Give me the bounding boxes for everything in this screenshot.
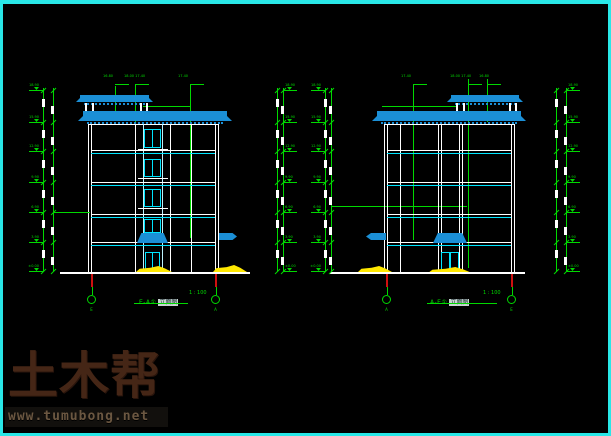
window-mullion	[152, 130, 154, 147]
dimension-text-block	[555, 190, 558, 198]
dimension-text-block	[564, 167, 567, 175]
floor-slab-line	[91, 214, 215, 215]
dimension-text-block	[324, 99, 327, 107]
level-elevation-label: 12.90	[301, 144, 321, 149]
wall-top-line	[88, 124, 218, 125]
dimension-text-block	[42, 130, 45, 138]
dimension-text-block	[324, 190, 327, 198]
leader-line	[190, 84, 204, 85]
level-elevation-label: 6.90	[301, 205, 321, 210]
level-elevation-label: 15.90	[568, 115, 578, 120]
wall-edge-line	[218, 124, 219, 272]
floor-slab-line	[387, 245, 511, 246]
level-marker-line	[283, 122, 297, 123]
window-mullion	[152, 190, 154, 206]
level-elevation-label: 3.90	[301, 235, 321, 240]
floor-slab-line	[91, 153, 215, 154]
floor-slab-line	[387, 217, 511, 218]
grid-stub-green	[512, 287, 513, 295]
awning-canopy	[137, 233, 168, 243]
wall-mullion-line	[438, 124, 439, 272]
level-marker-line	[29, 212, 43, 213]
main-roof-eave-tip	[226, 115, 232, 121]
watermark-url: www.tumubong.net	[5, 407, 168, 427]
dimension-text-block	[281, 257, 284, 265]
grid-stub-red	[386, 274, 388, 287]
leader-line	[468, 84, 482, 85]
level-marker-line	[283, 151, 297, 152]
dimension-text-block	[564, 106, 567, 114]
level-elevation-label: ±0.00	[568, 264, 579, 269]
level-elevation-label: 9.90	[301, 175, 321, 180]
leader-line	[115, 84, 129, 85]
dimension-tick	[51, 269, 57, 275]
level-marker-line	[311, 90, 325, 91]
wall-mullion-line	[170, 124, 171, 272]
level-elevation-label: 18.90	[285, 83, 295, 88]
level-marker-line	[566, 90, 580, 91]
left-title-underline	[134, 303, 188, 304]
axis-bubble: A	[382, 295, 391, 304]
dimension-text-block	[51, 257, 54, 265]
dim-extension-line	[53, 212, 90, 213]
small-roof-eave-tip	[148, 97, 153, 102]
level-marker-line	[29, 122, 43, 123]
floor-slab-line	[91, 150, 215, 151]
dimension-tick	[275, 269, 281, 275]
level-marker-line	[283, 182, 297, 183]
wall-edge-line	[215, 124, 216, 272]
right-view-title: A-E①立面图	[430, 289, 469, 308]
dimension-text-block	[51, 167, 54, 175]
grid-line-horizontal	[143, 106, 190, 107]
dimension-text-block	[555, 130, 558, 138]
grid-line-horizontal	[382, 106, 458, 107]
roof-elevation-label: 16.80	[103, 74, 113, 79]
dimension-text-block	[564, 137, 567, 145]
axis-bubble: E	[87, 295, 96, 304]
dimension-text-block	[51, 137, 54, 145]
dimension-text-block	[329, 106, 332, 114]
left-view-title: E-A①立面图	[139, 289, 178, 308]
level-marker-line	[566, 271, 580, 272]
dimension-text-block	[51, 197, 54, 205]
wall-mullion-line	[400, 124, 401, 272]
dimension-text-block	[324, 160, 327, 168]
wall-edge-line	[387, 124, 388, 272]
dimension-text-block	[51, 106, 54, 114]
dimension-text-block	[42, 160, 45, 168]
level-marker-line	[311, 212, 325, 213]
small-roof-eave-tip	[518, 97, 523, 102]
level-marker-line	[566, 242, 580, 243]
floor-slab-line	[91, 185, 215, 186]
grid-stub-red	[511, 274, 513, 287]
wall-edge-line	[511, 124, 512, 272]
floor-slab-line	[91, 182, 215, 183]
level-elevation-label: ±0.00	[19, 264, 39, 269]
dimension-text-block	[276, 160, 279, 168]
ground-line	[330, 272, 525, 274]
dimension-text-block	[42, 99, 45, 107]
dimension-text-block	[324, 220, 327, 228]
main-roof-eave-tip	[372, 115, 378, 121]
floor-slab-line	[91, 245, 215, 246]
floor-slab-line	[387, 153, 511, 154]
level-elevation-label: 18.90	[19, 83, 39, 88]
dimension-text-block	[281, 197, 284, 205]
level-marker-line	[311, 182, 325, 183]
floor-slab-line	[387, 185, 511, 186]
dimension-text-block	[555, 99, 558, 107]
roof-elevation-label: 17.40	[401, 74, 411, 79]
floor-slab-line	[387, 214, 511, 215]
window-sill-line	[138, 149, 168, 150]
level-elevation-label: 9.90	[568, 175, 576, 180]
dimension-tick	[554, 269, 560, 275]
dimension-text-block	[276, 220, 279, 228]
wall-top-line	[384, 124, 514, 125]
level-elevation-label: 12.90	[285, 144, 295, 149]
small-roof	[451, 95, 519, 102]
dimension-text-block	[276, 250, 279, 258]
window-sill-line	[138, 208, 168, 209]
level-marker-line	[283, 212, 297, 213]
dimension-text-block	[281, 106, 284, 114]
roof-elevation-label: 18.00 17.40	[124, 74, 145, 79]
level-marker-line	[566, 212, 580, 213]
dimension-text-block	[42, 220, 45, 228]
wall-mullion-line	[441, 124, 442, 272]
level-elevation-label: 6.90	[568, 205, 576, 210]
roof-elevation-label: 17.40	[178, 74, 188, 79]
wall-mullion-line	[459, 124, 460, 272]
wall-edge-line	[384, 124, 385, 272]
wall-edge-line	[514, 124, 515, 272]
awning-canopy	[219, 233, 237, 240]
roof-elevation-label: 18.00 17.40	[450, 74, 471, 79]
level-elevation-label: 3.90	[285, 235, 293, 240]
level-elevation-label: ±0.00	[301, 264, 321, 269]
dimension-text-block	[564, 227, 567, 235]
level-marker-line	[566, 122, 580, 123]
dimension-text-block	[329, 137, 332, 145]
level-elevation-label: 3.90	[19, 235, 39, 240]
main-roof-eave-tip	[78, 115, 84, 121]
cad-drawing-viewport: 16.8018.00 17.4017.40EA17.4018.00 17.401…	[0, 0, 611, 436]
level-marker-line	[29, 271, 43, 272]
small-roof-eave-tip	[76, 97, 81, 102]
dimension-text-block	[555, 250, 558, 258]
level-marker-line	[29, 90, 43, 91]
wall-edge-line	[88, 124, 89, 272]
dimension-text-block	[329, 197, 332, 205]
floor-slab-line	[387, 150, 511, 151]
wall-edge-line	[91, 124, 92, 272]
dimension-text-block	[564, 257, 567, 265]
dimension-text-block	[324, 250, 327, 258]
floor-slab-line	[387, 182, 511, 183]
grid-stub-green	[387, 287, 388, 295]
level-elevation-label: ±0.00	[285, 264, 296, 269]
dimension-text-block	[564, 197, 567, 205]
window-mullion	[152, 160, 154, 176]
axis-bubble-label: E	[90, 307, 93, 312]
leader-line	[487, 84, 501, 85]
leader-line	[135, 84, 149, 85]
dimension-text-block	[281, 227, 284, 235]
main-roof	[377, 111, 521, 121]
level-elevation-label: 12.90	[568, 144, 578, 149]
dimension-text-block	[555, 160, 558, 168]
dimension-text-block	[42, 190, 45, 198]
level-elevation-label: 6.90	[285, 205, 293, 210]
axis-bubble-label: E	[510, 307, 513, 312]
level-marker-line	[566, 182, 580, 183]
main-roof	[83, 111, 227, 121]
level-marker-line	[311, 122, 325, 123]
level-elevation-label: 18.90	[568, 83, 578, 88]
level-elevation-label: 9.90	[19, 175, 39, 180]
level-elevation-label: 12.90	[19, 144, 39, 149]
right-title-underline	[427, 303, 497, 304]
right-view-scale-label: 1 : 100	[483, 290, 501, 296]
dimension-text-block	[276, 190, 279, 198]
level-marker-line	[311, 271, 325, 272]
dimension-text-block	[555, 220, 558, 228]
watermark-logo: 土木帮	[8, 350, 178, 402]
level-marker-line	[566, 151, 580, 152]
leader-line	[413, 84, 427, 85]
level-elevation-label: 6.90	[19, 205, 39, 210]
dimension-text-block	[276, 130, 279, 138]
grid-line-vertical	[468, 79, 469, 268]
roof-elevation-label: 16.80	[479, 74, 489, 79]
level-elevation-label: 15.90	[19, 115, 39, 120]
wall-mullion-line	[135, 124, 136, 272]
dimension-text-block	[51, 227, 54, 235]
dimension-text-block	[281, 167, 284, 175]
awning-canopy	[366, 233, 386, 240]
level-elevation-label: 18.90	[301, 83, 321, 88]
grid-line-horizontal	[331, 206, 467, 207]
dimension-text-block	[42, 250, 45, 258]
grid-stub-green	[216, 287, 217, 295]
dimension-text-block	[281, 137, 284, 145]
small-roof	[80, 95, 149, 102]
grid-stub-red	[91, 274, 93, 287]
axis-bubble-label: A	[214, 307, 217, 312]
dimension-text-block	[329, 227, 332, 235]
level-marker-line	[283, 90, 297, 91]
left-view-scale-label: 1 : 100	[189, 290, 207, 296]
axis-bubble-label: A	[385, 307, 388, 312]
ground-line	[60, 272, 250, 274]
level-marker-line	[311, 151, 325, 152]
window-sill-line	[138, 178, 168, 179]
axis-bubble: A	[211, 295, 220, 304]
dimension-text-block	[329, 257, 332, 265]
level-marker-line	[29, 242, 43, 243]
floor-slab-line	[91, 217, 215, 218]
small-roof-eave-tip	[447, 97, 452, 102]
grid-stub-red	[215, 274, 217, 287]
wall-mullion-line	[462, 124, 463, 272]
wall-mullion-line	[162, 124, 163, 272]
level-elevation-label: 15.90	[285, 115, 295, 120]
axis-bubble: E	[507, 295, 516, 304]
level-elevation-label: 15.90	[301, 115, 321, 120]
level-marker-line	[29, 151, 43, 152]
level-marker-line	[311, 242, 325, 243]
level-elevation-label: 3.90	[568, 235, 576, 240]
level-marker-line	[29, 182, 43, 183]
wall-mullion-line	[191, 124, 192, 272]
grid-stub-green	[92, 287, 93, 295]
dimension-text-block	[329, 167, 332, 175]
level-elevation-label: 9.90	[285, 175, 293, 180]
dimension-text-block	[324, 130, 327, 138]
window-mullion	[152, 220, 154, 232]
level-marker-line	[283, 271, 297, 272]
awning-canopy	[433, 233, 467, 243]
level-marker-line	[283, 242, 297, 243]
dimension-text-block	[276, 99, 279, 107]
